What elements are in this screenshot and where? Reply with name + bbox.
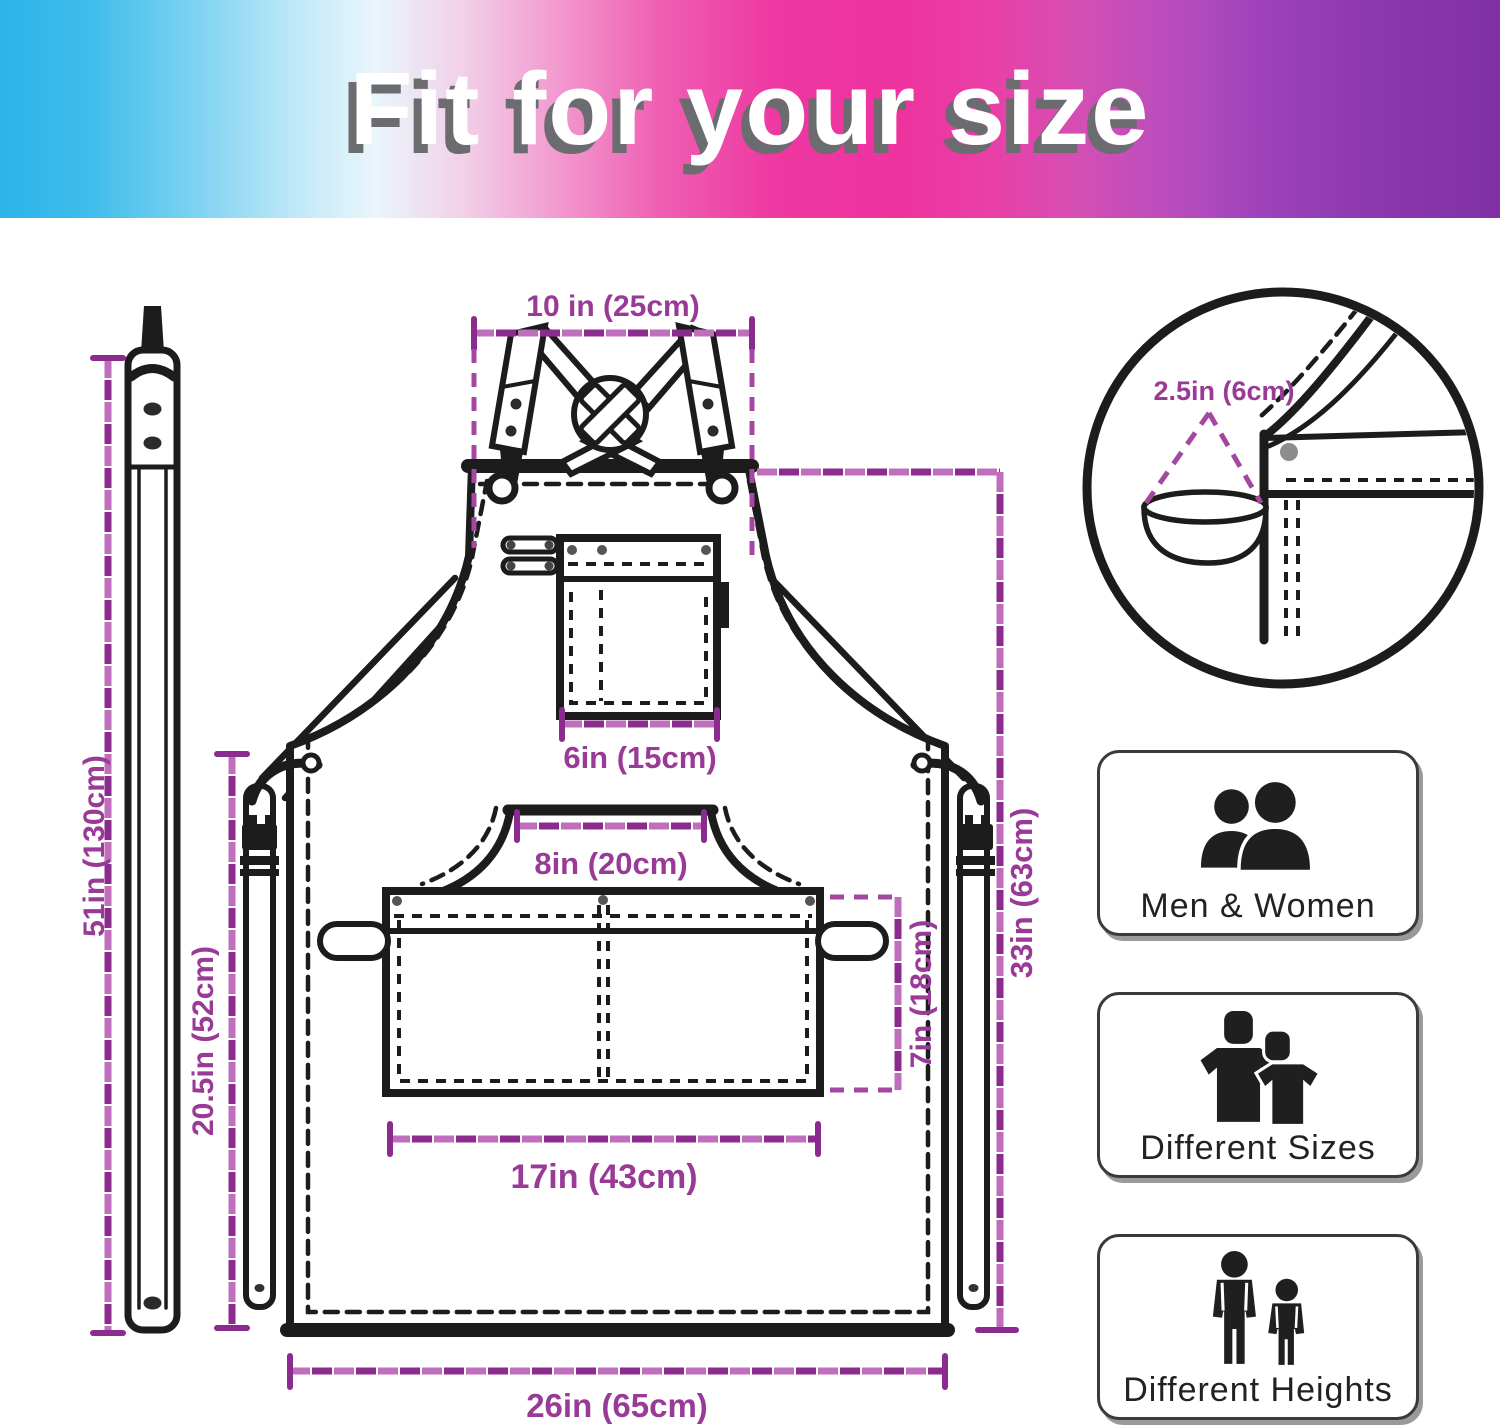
loop-detail-circle: 2.5in (6cm) [1087,290,1480,684]
feature-label-different-heights: Different Heights [1123,1373,1393,1407]
dim-apron-height: 33in (63cm) [1004,808,1039,979]
men-women-icon [1183,778,1333,885]
feature-card-men-women: Men & Women [1097,750,1419,936]
chest-pocket [560,538,729,716]
left-towel-loop [320,924,388,958]
dim-waist-opening: 8in (20cm) [534,846,687,881]
brand-tag [716,582,729,628]
dim-cross-strap-length-group: 51in (130cm) [78,358,123,1333]
dim-side-height-group: 20.5in (52cm) [187,754,247,1328]
dim-waist-pocket-width: 17in (43cm) [510,1158,697,1196]
page: Fit for your size [0,0,1500,1426]
dim-cross-strap-length: 51in (130cm) [78,755,111,937]
different-heights-icon [1183,1251,1333,1369]
dim-bottom-width: 26in (65cm) [526,1387,708,1424]
dim-chest-pocket-width: 6in (15cm) [563,740,716,775]
feature-label-men-women: Men & Women [1140,889,1375,923]
dim-waist-pocket-height: 7in (18cm) [905,920,938,1068]
feature-card-different-heights: Different Heights [1097,1234,1419,1420]
apron-size-diagram: 2.5in (6cm) 10 in (25cm) 51in (130cm) [0,0,1500,1426]
dim-bottom-width-group: 26in (65cm) [290,1356,945,1424]
right-grommet [709,475,735,501]
right-side-strap [956,786,995,1307]
feature-label-different-sizes: Different Sizes [1140,1131,1375,1165]
left-side-strap [240,786,279,1307]
cross-back-strap-drawing [128,306,177,1330]
different-sizes-icon [1183,1009,1333,1127]
dim-side-height: 20.5in (52cm) [187,946,220,1136]
feature-card-different-sizes: Different Sizes [1097,992,1419,1178]
dim-neck-strap-width: 10 in (25cm) [526,290,699,323]
right-towel-loop [818,924,886,958]
dim-towel-loop: 2.5in (6cm) [1153,376,1294,406]
left-grommet [489,475,515,501]
